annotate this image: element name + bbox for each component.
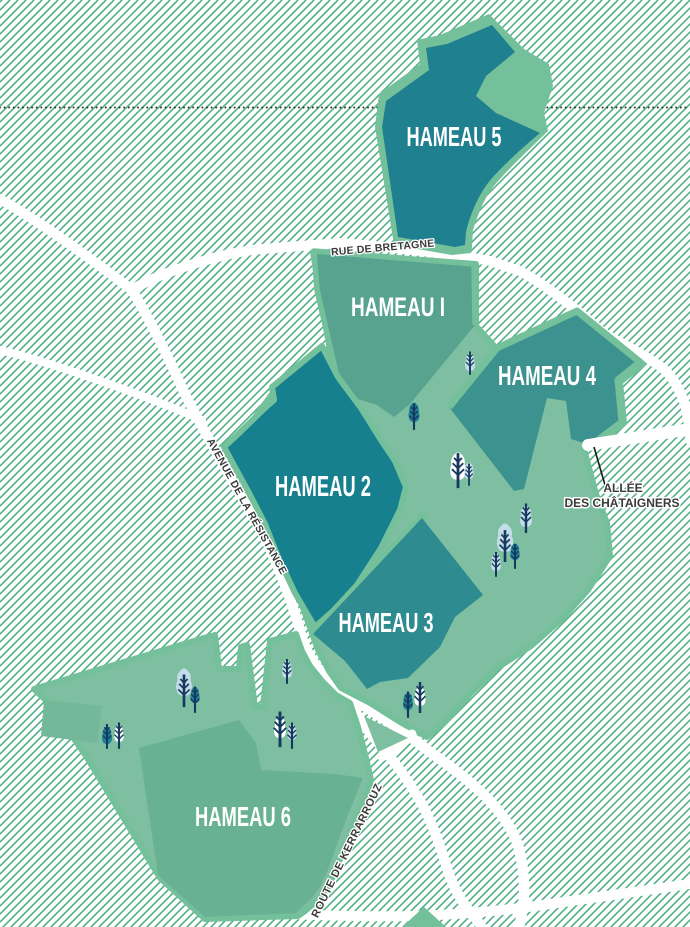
svg-text:HAMEAU 3: HAMEAU 3 (339, 607, 434, 638)
svg-text:HAMEAU 2: HAMEAU 2 (275, 471, 371, 503)
svg-text:HAMEAU 4: HAMEAU 4 (498, 360, 596, 391)
svg-text:HAMEAU I: HAMEAU I (351, 292, 445, 322)
svg-text:HAMEAU 6: HAMEAU 6 (195, 801, 291, 832)
svg-text:DES CHÂTAIGNERS: DES CHÂTAIGNERS (564, 495, 679, 510)
svg-text:ALLÉE: ALLÉE (603, 480, 642, 495)
svg-text:HAMEAU 5: HAMEAU 5 (407, 121, 502, 152)
